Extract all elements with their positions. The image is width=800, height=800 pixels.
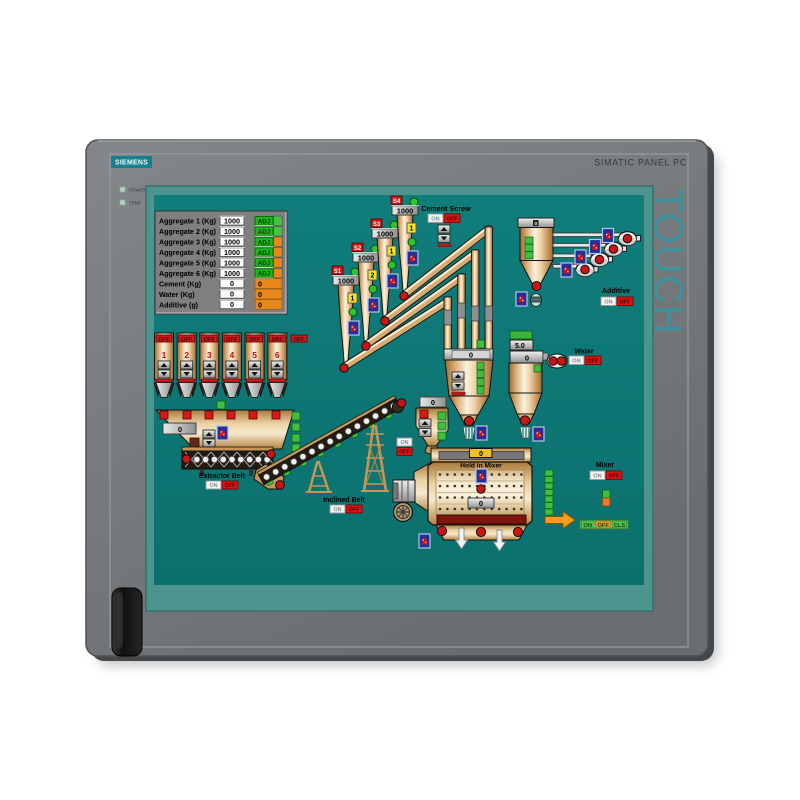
svg-text:0: 0 xyxy=(479,449,483,458)
svg-text:1000: 1000 xyxy=(224,269,240,278)
svg-text:POWER: POWER xyxy=(129,188,146,193)
svg-text:1: 1 xyxy=(410,226,414,233)
svg-text:ADJ: ADJ xyxy=(258,260,271,267)
svg-text:CLS: CLS xyxy=(614,523,626,529)
svg-text:3: 3 xyxy=(207,350,212,360)
svg-text:1: 1 xyxy=(390,249,394,256)
svg-text:S3: S3 xyxy=(373,222,381,228)
svg-text:0: 0 xyxy=(230,279,234,288)
svg-text:0: 0 xyxy=(258,279,262,288)
svg-text:OFF: OFF xyxy=(608,474,620,480)
svg-text:ADJ: ADJ xyxy=(258,250,271,257)
svg-text:S4: S4 xyxy=(393,199,401,205)
svg-text:0: 0 xyxy=(258,290,262,299)
svg-text:ON: ON xyxy=(431,217,439,223)
svg-text:Additive: Additive xyxy=(602,286,630,295)
svg-text:OFF: OFF xyxy=(204,337,216,343)
svg-text:Cement (Kg): Cement (Kg) xyxy=(159,280,202,288)
svg-text:0: 0 xyxy=(535,221,538,226)
svg-text:OFF: OFF xyxy=(158,337,170,343)
svg-text:0: 0 xyxy=(431,398,435,407)
svg-text:ON: ON xyxy=(593,474,601,480)
svg-text:5.0: 5.0 xyxy=(515,343,525,350)
svg-text:OFF: OFF xyxy=(619,300,631,306)
svg-text:Aggregate 1 (Kg): Aggregate 1 (Kg) xyxy=(159,218,217,226)
svg-text:TEMP: TEMP xyxy=(129,201,141,206)
svg-text:OFF: OFF xyxy=(349,507,360,513)
svg-text:2: 2 xyxy=(371,273,375,280)
svg-text:Additive (g): Additive (g) xyxy=(159,301,199,309)
svg-text:1000: 1000 xyxy=(224,227,240,236)
svg-text:Aggregate 5 (Kg): Aggregate 5 (Kg) xyxy=(159,260,217,268)
svg-text:5: 5 xyxy=(252,350,257,360)
svg-text:1000: 1000 xyxy=(224,258,240,267)
svg-text:2: 2 xyxy=(184,350,189,360)
svg-text:OFF: OFF xyxy=(597,523,609,529)
svg-text:ON: ON xyxy=(572,359,580,365)
svg-text:ON: ON xyxy=(209,483,217,489)
svg-text:ADJ: ADJ xyxy=(258,229,271,236)
svg-text:Water: Water xyxy=(574,349,593,356)
svg-text:1000: 1000 xyxy=(358,253,374,262)
svg-text:0: 0 xyxy=(230,290,234,299)
svg-text:OFF: OFF xyxy=(226,337,238,343)
svg-text:Cement Screw: Cement Screw xyxy=(421,204,471,213)
svg-text:Hold in Mixer: Hold in Mixer xyxy=(460,463,502,470)
svg-text:0: 0 xyxy=(178,425,182,434)
svg-text:0: 0 xyxy=(258,300,262,309)
svg-text:S1: S1 xyxy=(334,269,342,275)
svg-text:OFF: OFF xyxy=(446,217,458,223)
svg-text:ADJ: ADJ xyxy=(258,218,271,225)
svg-text:4: 4 xyxy=(230,350,235,360)
svg-text:ON: ON xyxy=(400,440,408,446)
svg-text:1000: 1000 xyxy=(397,206,413,215)
svg-text:Water (Kg): Water (Kg) xyxy=(159,291,195,299)
svg-text:1000: 1000 xyxy=(224,237,240,246)
svg-text:Inclined Belt: Inclined Belt xyxy=(323,497,365,504)
svg-text:OFF: OFF xyxy=(399,450,410,456)
svg-text:0: 0 xyxy=(479,499,483,508)
svg-text:Extractor Belt: Extractor Belt xyxy=(199,473,246,480)
svg-text:ON: ON xyxy=(333,507,341,513)
svg-text:1000: 1000 xyxy=(377,229,393,238)
svg-text:ON: ON xyxy=(583,523,592,529)
svg-text:0: 0 xyxy=(230,300,234,309)
svg-text:ADJ: ADJ xyxy=(258,271,271,278)
svg-text:OFF: OFF xyxy=(249,337,261,343)
svg-text:1: 1 xyxy=(162,350,167,360)
svg-text:ON: ON xyxy=(604,300,612,306)
svg-text:OFF: OFF xyxy=(225,483,236,489)
svg-text:1000: 1000 xyxy=(338,276,354,285)
svg-text:6: 6 xyxy=(275,350,280,360)
svg-text:OFF: OFF xyxy=(181,337,193,343)
svg-text:1: 1 xyxy=(351,296,355,303)
svg-text:ADJ: ADJ xyxy=(258,239,271,246)
svg-text:1000: 1000 xyxy=(224,248,240,257)
svg-text:0: 0 xyxy=(525,354,529,363)
svg-text:Aggregate 3 (Kg): Aggregate 3 (Kg) xyxy=(159,239,217,247)
svg-text:Aggregate 6 (Kg): Aggregate 6 (Kg) xyxy=(159,270,217,278)
svg-text:0: 0 xyxy=(469,351,473,360)
svg-text:1000: 1000 xyxy=(224,217,240,226)
svg-text:OFF: OFF xyxy=(587,359,599,365)
svg-text:S2: S2 xyxy=(354,246,362,252)
svg-text:SIEMENS: SIEMENS xyxy=(115,160,148,167)
svg-text:SIMATIC PANEL PC: SIMATIC PANEL PC xyxy=(594,158,687,168)
svg-text:Aggregate 4 (Kg): Aggregate 4 (Kg) xyxy=(159,249,217,257)
svg-text:OFF: OFF xyxy=(293,337,305,343)
svg-text:OFF: OFF xyxy=(272,337,284,343)
svg-text:Mixer: Mixer xyxy=(596,462,615,469)
svg-text:Aggregate 2 (Kg): Aggregate 2 (Kg) xyxy=(159,228,217,236)
